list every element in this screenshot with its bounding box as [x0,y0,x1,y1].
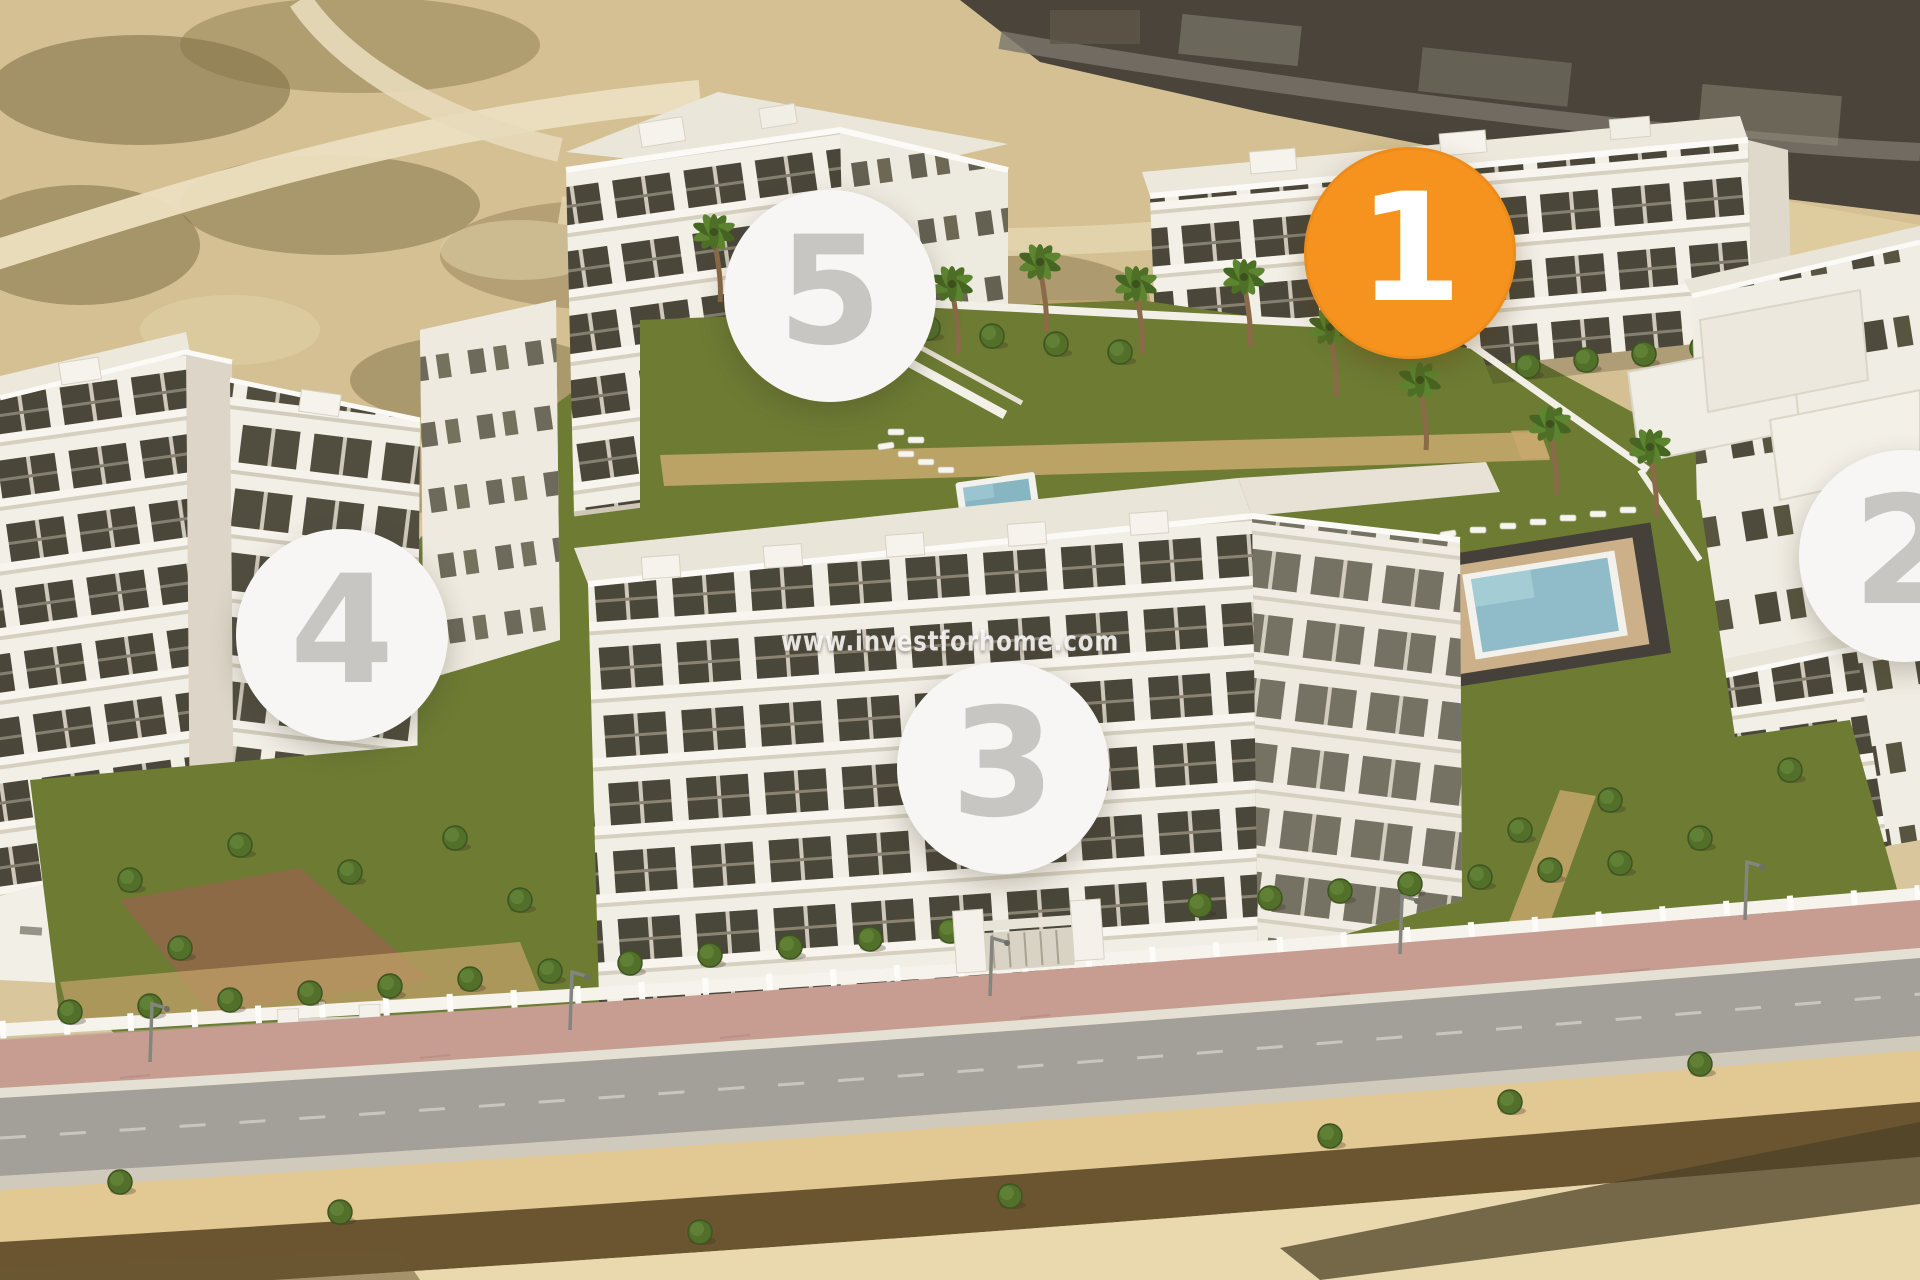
phase-marker-2-label: 2 [1853,477,1920,627]
phase-marker-3-label: 3 [951,689,1055,839]
phase-marker-5: 5 [724,190,936,402]
phase-marker-5-label: 5 [778,217,882,367]
phase-marker-3: 3 [897,662,1109,874]
phase-marker-1: 1 [1304,147,1516,359]
watermark: www.investforhome.com [781,625,1119,658]
phase-marker-1-label: 1 [1358,174,1462,324]
phase-marker-4-label: 4 [290,556,394,706]
site-plan-image: www.investforhome.com 1 2 3 4 5 [0,0,1920,1280]
phase-marker-4: 4 [236,529,448,741]
